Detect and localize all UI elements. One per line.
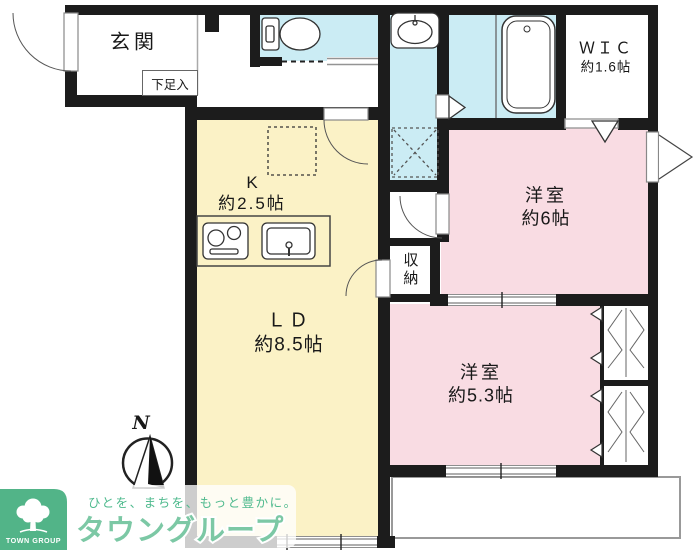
kitchen-sink-icon bbox=[262, 223, 315, 259]
wic-size: 約1.6帖 bbox=[579, 60, 633, 77]
toilet-wall-opening bbox=[327, 57, 378, 66]
washbasin-icon bbox=[391, 13, 439, 48]
north-letter: N bbox=[132, 412, 149, 436]
western-room-53-name: 洋室 bbox=[460, 363, 502, 383]
logo: TOWN GROUP ひとを、まちを、もっと豊かに。 タウングループ bbox=[0, 485, 298, 550]
living-dining-size: 約8.5帖 bbox=[254, 333, 323, 357]
western-room-6-label: 洋室 約6帖 bbox=[521, 185, 570, 230]
logo-tagline: ひとを、まちを、もっと豊かに。 bbox=[88, 496, 298, 510]
kitchen-door-leaf bbox=[324, 108, 368, 120]
room-fills bbox=[197, 13, 650, 538]
wic-label: ＷＩＣ 約1.6帖 bbox=[579, 40, 633, 77]
storage-label: 収納 bbox=[400, 252, 419, 288]
entrance-door-swing-arc bbox=[13, 13, 71, 71]
floor-plan-drawing: TOWN GROUP ひとを、まちを、もっと豊かに。 タウングループ bbox=[0, 0, 700, 550]
western-room-53-label: 洋室 約5.3帖 bbox=[448, 362, 514, 407]
western-room-53-size: 約5.3帖 bbox=[448, 384, 514, 407]
western-room-6-size: 約6帖 bbox=[521, 207, 570, 230]
kitchen-name: K bbox=[246, 173, 257, 192]
toilet-icon bbox=[262, 18, 320, 50]
bathroom-door-leaf bbox=[436, 95, 449, 118]
wic-name: ＷＩＣ bbox=[579, 41, 633, 58]
shoe-storage-label: 下足入 bbox=[142, 70, 198, 96]
room6-exterior-door-swing bbox=[659, 135, 692, 179]
entrance-label: 玄関 bbox=[110, 31, 158, 56]
living-dining-label: ＬＤ 約8.5帖 bbox=[254, 309, 323, 357]
kitchen-size: 約2.5帖 bbox=[218, 193, 286, 214]
living-dining-name: ＬＤ bbox=[267, 310, 311, 331]
room6-entry-door-leaf bbox=[436, 194, 449, 234]
stove-icon bbox=[203, 223, 248, 259]
western-room-6-name: 洋室 bbox=[525, 186, 567, 206]
storage-door-leaf bbox=[376, 260, 390, 297]
kitchen-label: K 約2.5帖 bbox=[218, 172, 286, 215]
entrance-door-leaf bbox=[64, 13, 78, 71]
balcony bbox=[392, 477, 680, 538]
room6-exterior-door-leaf bbox=[647, 132, 659, 182]
logo-mark-text: TOWN GROUP bbox=[6, 536, 61, 545]
logo-name: タウングループ bbox=[76, 514, 284, 547]
floor-plan: TOWN GROUP ひとを、まちを、もっと豊かに。 タウングループ 玄関 下足… bbox=[0, 0, 700, 550]
bathtub-icon bbox=[502, 16, 555, 113]
north-compass bbox=[123, 437, 172, 489]
